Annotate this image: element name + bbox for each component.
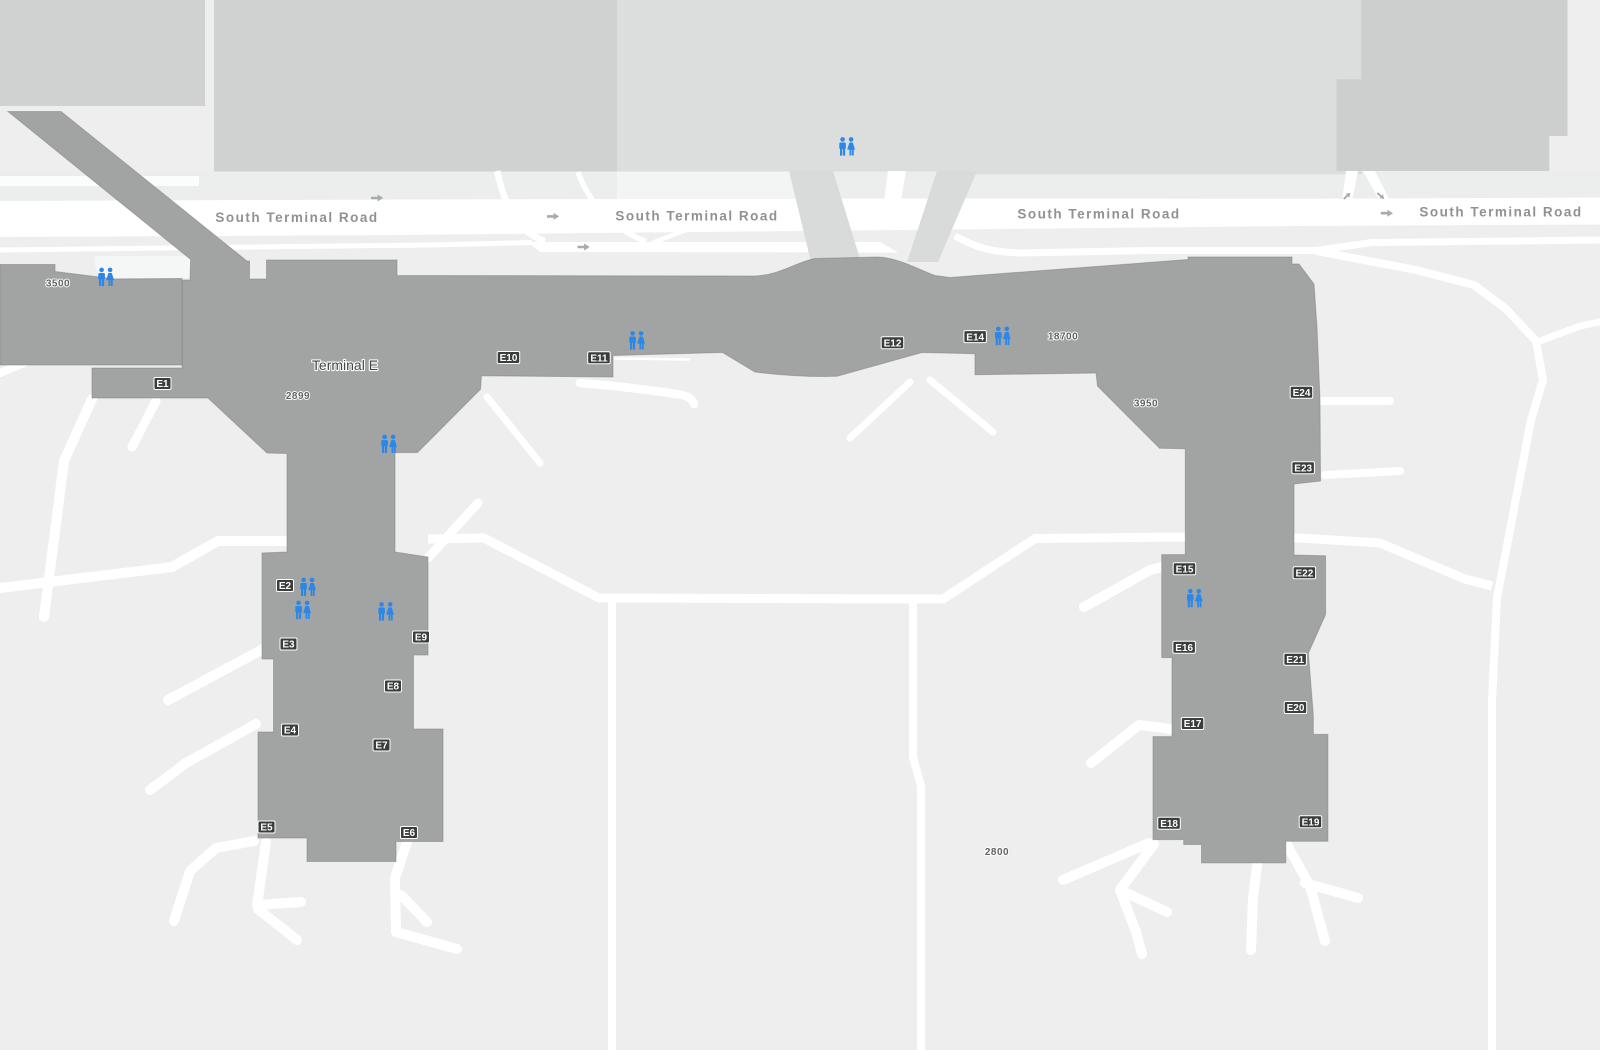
- svg-text:South Terminal Road: South Terminal Road: [1017, 207, 1180, 222]
- svg-text:E22: E22: [1296, 569, 1314, 580]
- svg-text:South Terminal Road: South Terminal Road: [615, 209, 778, 224]
- svg-text:E9: E9: [415, 633, 428, 644]
- svg-text:South Terminal Road: South Terminal Road: [215, 210, 378, 225]
- svg-text:E14: E14: [966, 332, 984, 343]
- svg-text:E6: E6: [403, 828, 416, 839]
- svg-text:E16: E16: [1175, 643, 1193, 654]
- svg-text:E5: E5: [260, 823, 273, 834]
- svg-text:E18: E18: [1160, 819, 1178, 830]
- svg-text:3950: 3950: [1134, 399, 1158, 410]
- svg-text:E19: E19: [1302, 818, 1320, 829]
- svg-text:E10: E10: [500, 353, 518, 364]
- svg-text:E24: E24: [1293, 388, 1311, 399]
- svg-text:E15: E15: [1176, 564, 1194, 575]
- svg-text:3500: 3500: [46, 279, 70, 290]
- svg-text:E12: E12: [884, 339, 902, 350]
- svg-text:E3: E3: [282, 640, 295, 651]
- svg-text:E1: E1: [156, 379, 169, 390]
- svg-text:E2: E2: [279, 581, 292, 592]
- svg-text:E7: E7: [375, 741, 388, 752]
- svg-text:E17: E17: [1184, 719, 1202, 730]
- svg-text:E4: E4: [284, 726, 297, 737]
- svg-text:South Terminal Road: South Terminal Road: [1419, 205, 1582, 220]
- svg-text:E21: E21: [1286, 655, 1304, 666]
- svg-text:E8: E8: [387, 682, 400, 693]
- svg-text:E11: E11: [590, 354, 608, 365]
- svg-text:E20: E20: [1287, 703, 1305, 714]
- svg-text:Terminal E: Terminal E: [312, 357, 378, 373]
- svg-text:18700: 18700: [1048, 332, 1078, 343]
- svg-text:E23: E23: [1294, 464, 1312, 475]
- svg-text:2899: 2899: [286, 391, 310, 402]
- svg-text:2800: 2800: [985, 847, 1009, 858]
